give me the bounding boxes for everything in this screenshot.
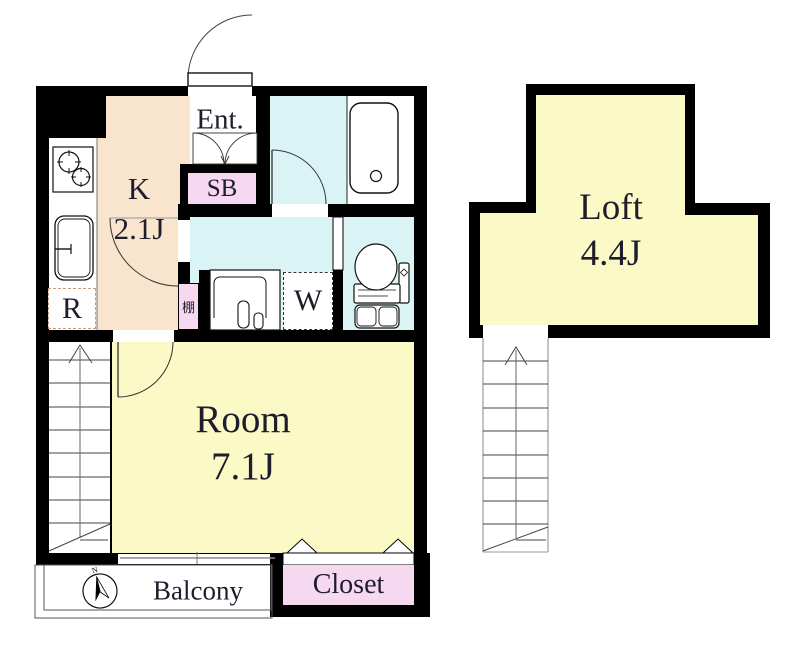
room-size: 7.1J [195, 443, 290, 490]
balcony-label: Balcony [153, 578, 243, 605]
shelf: 棚 [178, 283, 199, 330]
bathtub-icon [350, 103, 398, 193]
loft-size: 4.4J [579, 231, 643, 277]
washbasin-icon [210, 270, 280, 330]
stove-icon [53, 147, 93, 192]
refrigerator-label: R [62, 292, 82, 326]
staircase-loft [483, 338, 548, 552]
kitchen-name: K [114, 169, 165, 209]
closet: Closet [283, 565, 414, 605]
washing-machine-space: W [283, 272, 333, 330]
entrance-door [188, 15, 252, 86]
room-label: Room 7.1J [195, 396, 290, 490]
shoe-box-label: SB [207, 175, 238, 203]
loft-label: Loft 4.4J [579, 185, 643, 277]
kitchen-label: K 2.1J [114, 169, 165, 249]
shoe-box-doors-icon [193, 133, 257, 164]
shoe-box: SB [188, 173, 256, 204]
floor-plan: N SB R 棚 W Closet Ent. K 2.1J Room 7.1J … [0, 0, 800, 662]
loft-name: Loft [579, 185, 643, 231]
toilet-door-leaf [333, 217, 343, 270]
floor-plan-canvas: N [0, 0, 800, 662]
compass-north-label: N [91, 565, 99, 575]
entrance-label: Ent. [196, 106, 244, 135]
bathroom-floor [270, 96, 347, 204]
closet-label: Closet [313, 569, 385, 601]
kitchen-sink-icon [55, 216, 93, 280]
shelf-label: 棚 [182, 297, 195, 316]
refrigerator-space: R [48, 288, 96, 329]
window [118, 552, 277, 565]
kitchen-size: 2.1J [114, 209, 165, 249]
floor-fills [49, 95, 758, 553]
compass-icon: N [77, 562, 120, 612]
room-name: Room [195, 396, 290, 443]
washing-machine-label: W [294, 284, 322, 318]
